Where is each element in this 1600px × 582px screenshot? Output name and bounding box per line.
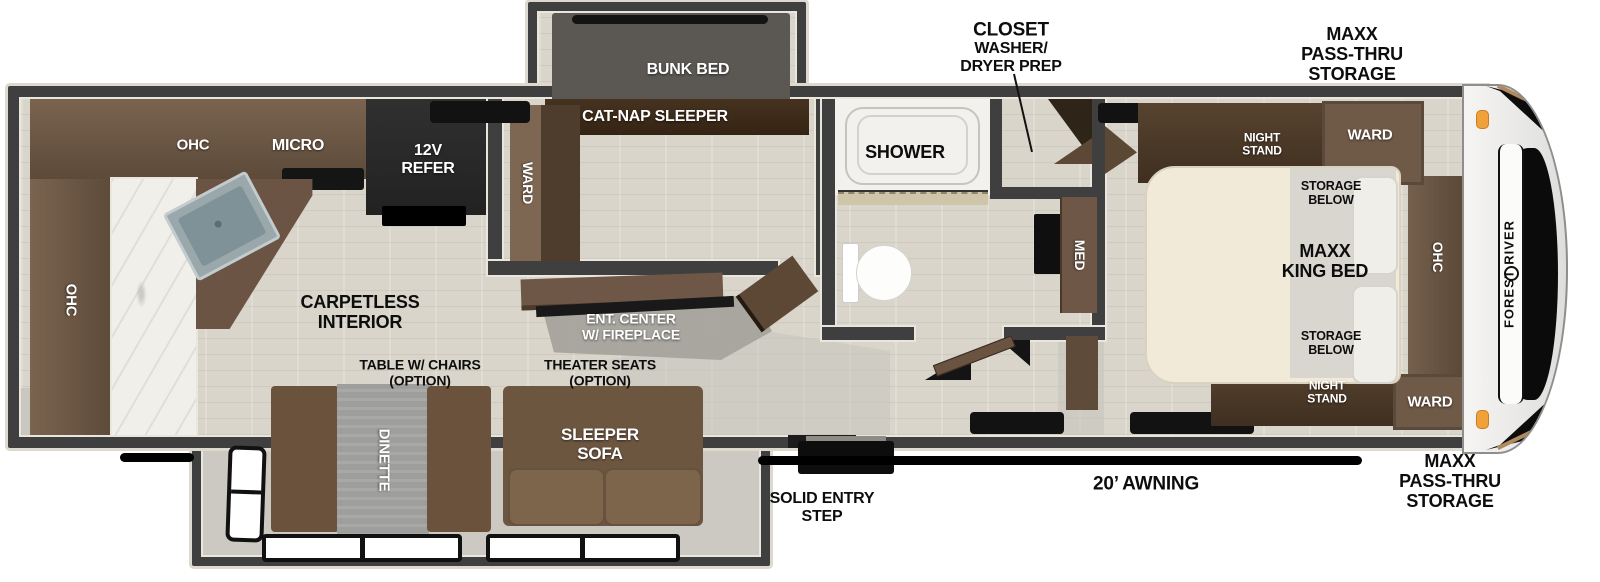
floorplan-canvas: FOREST RIVER CLOSET WASHER/ DRYER PREP M… [0, 0, 1600, 582]
slideout-bottom-window-2 [486, 534, 680, 562]
window-mullion [231, 489, 261, 494]
cap-windshield [1518, 148, 1558, 400]
label-storage-below-bottom: STORAGE BELOW [1301, 329, 1361, 357]
bunk-mattress [552, 13, 790, 105]
label-shower: SHOWER [865, 142, 945, 162]
label-closet-sub: WASHER/ DRYER PREP [960, 40, 1061, 76]
cap-graphic-top [1486, 86, 1564, 150]
label-bedroom-ohc: OHC [1429, 242, 1445, 273]
label-pass-thru-top: MAXX PASS-THRU STORAGE [1301, 24, 1403, 84]
sofa-cushion-left [508, 468, 605, 526]
label-closet-title: CLOSET [973, 19, 1049, 40]
mid-bottom-window [970, 412, 1064, 434]
label-theater-option: THEATER SEATS (OPTION) [544, 357, 656, 388]
label-bunk-bed: BUNK BED [647, 61, 730, 79]
dinette-bench-right [427, 386, 491, 532]
label-bunk-ward: WARD [519, 162, 535, 204]
label-night-stand-top: NIGHT STAND [1242, 132, 1281, 159]
slideout-side-window [225, 445, 266, 542]
sofa-cushion-right [604, 468, 702, 526]
front-cap: FOREST RIVER [1462, 84, 1568, 454]
label-refer: 12V REFER [401, 142, 454, 178]
bunkroom-bottom-wall [488, 261, 778, 275]
marker-light-top [1476, 110, 1489, 129]
label-dinette: DINETTE [375, 429, 392, 492]
bath-left-wall [822, 99, 835, 340]
label-cat-nap: CAT-NAP SLEEPER [582, 108, 728, 126]
label-ent-center: ENT. CENTER W/ FIREPLACE [582, 311, 680, 342]
label-entry-step: SOLID ENTRY STEP [770, 490, 875, 526]
label-storage-below-top: STORAGE BELOW [1301, 179, 1361, 207]
marker-light-bottom [1476, 410, 1489, 429]
brand-label: FOREST RIVER [1503, 220, 1518, 328]
label-pass-thru-bottom: MAXX PASS-THRU STORAGE [1399, 451, 1501, 511]
rear-top-window [430, 101, 530, 123]
closet-divider-wall [990, 99, 1002, 199]
shower-threshold [838, 192, 988, 205]
label-ward-bottom: WARD [1407, 395, 1452, 412]
awning-line-left [120, 453, 194, 462]
label-awning: 20’ AWNING [1093, 473, 1199, 494]
slideout-bottom-window-1 [262, 534, 462, 562]
label-table-option: TABLE W/ CHAIRS (OPTION) [359, 357, 480, 388]
bedroom-ohc-cabinet [1408, 176, 1466, 390]
label-ward-top: WARD [1347, 128, 1392, 145]
label-carpetless: CARPETLESS INTERIOR [300, 292, 419, 332]
window-mullion [360, 538, 365, 558]
label-ohc-left: OHC [62, 284, 79, 317]
entry-side-cabinet [1066, 336, 1098, 410]
label-sleeper-sofa: SLEEPER SOFA [561, 425, 639, 463]
refrigerator-base [382, 206, 466, 226]
toilet-bowl [856, 245, 912, 301]
label-ohc-top: OHC [177, 138, 210, 155]
label-micro: MICRO [272, 137, 324, 155]
window-mullion [580, 538, 585, 558]
awning-line-right [758, 456, 1362, 465]
label-night-stand-bottom: NIGHT STAND [1307, 380, 1346, 407]
bunk-pillow-strip [572, 15, 768, 24]
label-med: MED [1071, 240, 1087, 271]
bath-bottom-wall-left [822, 327, 914, 340]
bunkroom-left-wall [488, 99, 502, 275]
label-king-bed: MAXX KING BED [1282, 241, 1368, 281]
dinette-bench-left [271, 386, 339, 532]
